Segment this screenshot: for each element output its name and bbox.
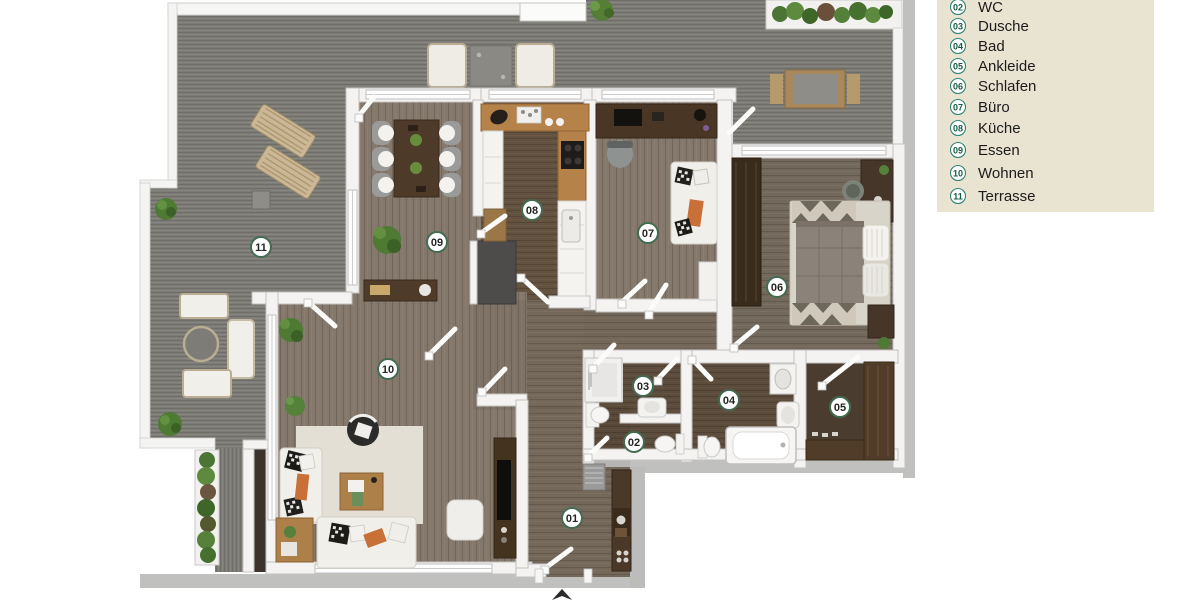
svg-text:11: 11 <box>953 192 963 202</box>
svg-text:Schlafen: Schlafen <box>978 78 1036 95</box>
svg-text:05: 05 <box>834 402 846 414</box>
svg-text:Büro: Büro <box>978 99 1010 116</box>
svg-text:06: 06 <box>771 282 783 294</box>
svg-text:Wohnen: Wohnen <box>978 165 1034 182</box>
svg-text:07: 07 <box>953 103 963 113</box>
svg-text:Küche: Küche <box>978 120 1021 137</box>
svg-text:03: 03 <box>953 22 963 32</box>
svg-text:Bad: Bad <box>978 38 1005 55</box>
svg-text:10: 10 <box>953 169 963 179</box>
svg-text:11: 11 <box>255 242 267 254</box>
svg-text:06: 06 <box>953 82 963 92</box>
svg-text:WC: WC <box>978 0 1003 16</box>
svg-text:10: 10 <box>382 364 394 376</box>
svg-text:03: 03 <box>637 381 649 393</box>
svg-text:Dusche: Dusche <box>978 18 1029 35</box>
svg-text:04: 04 <box>723 395 736 407</box>
svg-text:Terrasse: Terrasse <box>978 188 1036 205</box>
svg-text:04: 04 <box>953 42 963 52</box>
svg-text:09: 09 <box>431 237 443 249</box>
svg-text:05: 05 <box>953 62 963 72</box>
svg-text:02: 02 <box>953 3 963 13</box>
svg-text:08: 08 <box>526 205 538 217</box>
svg-text:02: 02 <box>628 437 640 449</box>
svg-text:Ankleide: Ankleide <box>978 58 1036 75</box>
svg-text:07: 07 <box>642 228 654 240</box>
svg-text:09: 09 <box>953 146 963 156</box>
svg-text:Essen: Essen <box>978 142 1020 159</box>
svg-text:01: 01 <box>566 513 578 525</box>
svg-text:08: 08 <box>953 124 963 134</box>
